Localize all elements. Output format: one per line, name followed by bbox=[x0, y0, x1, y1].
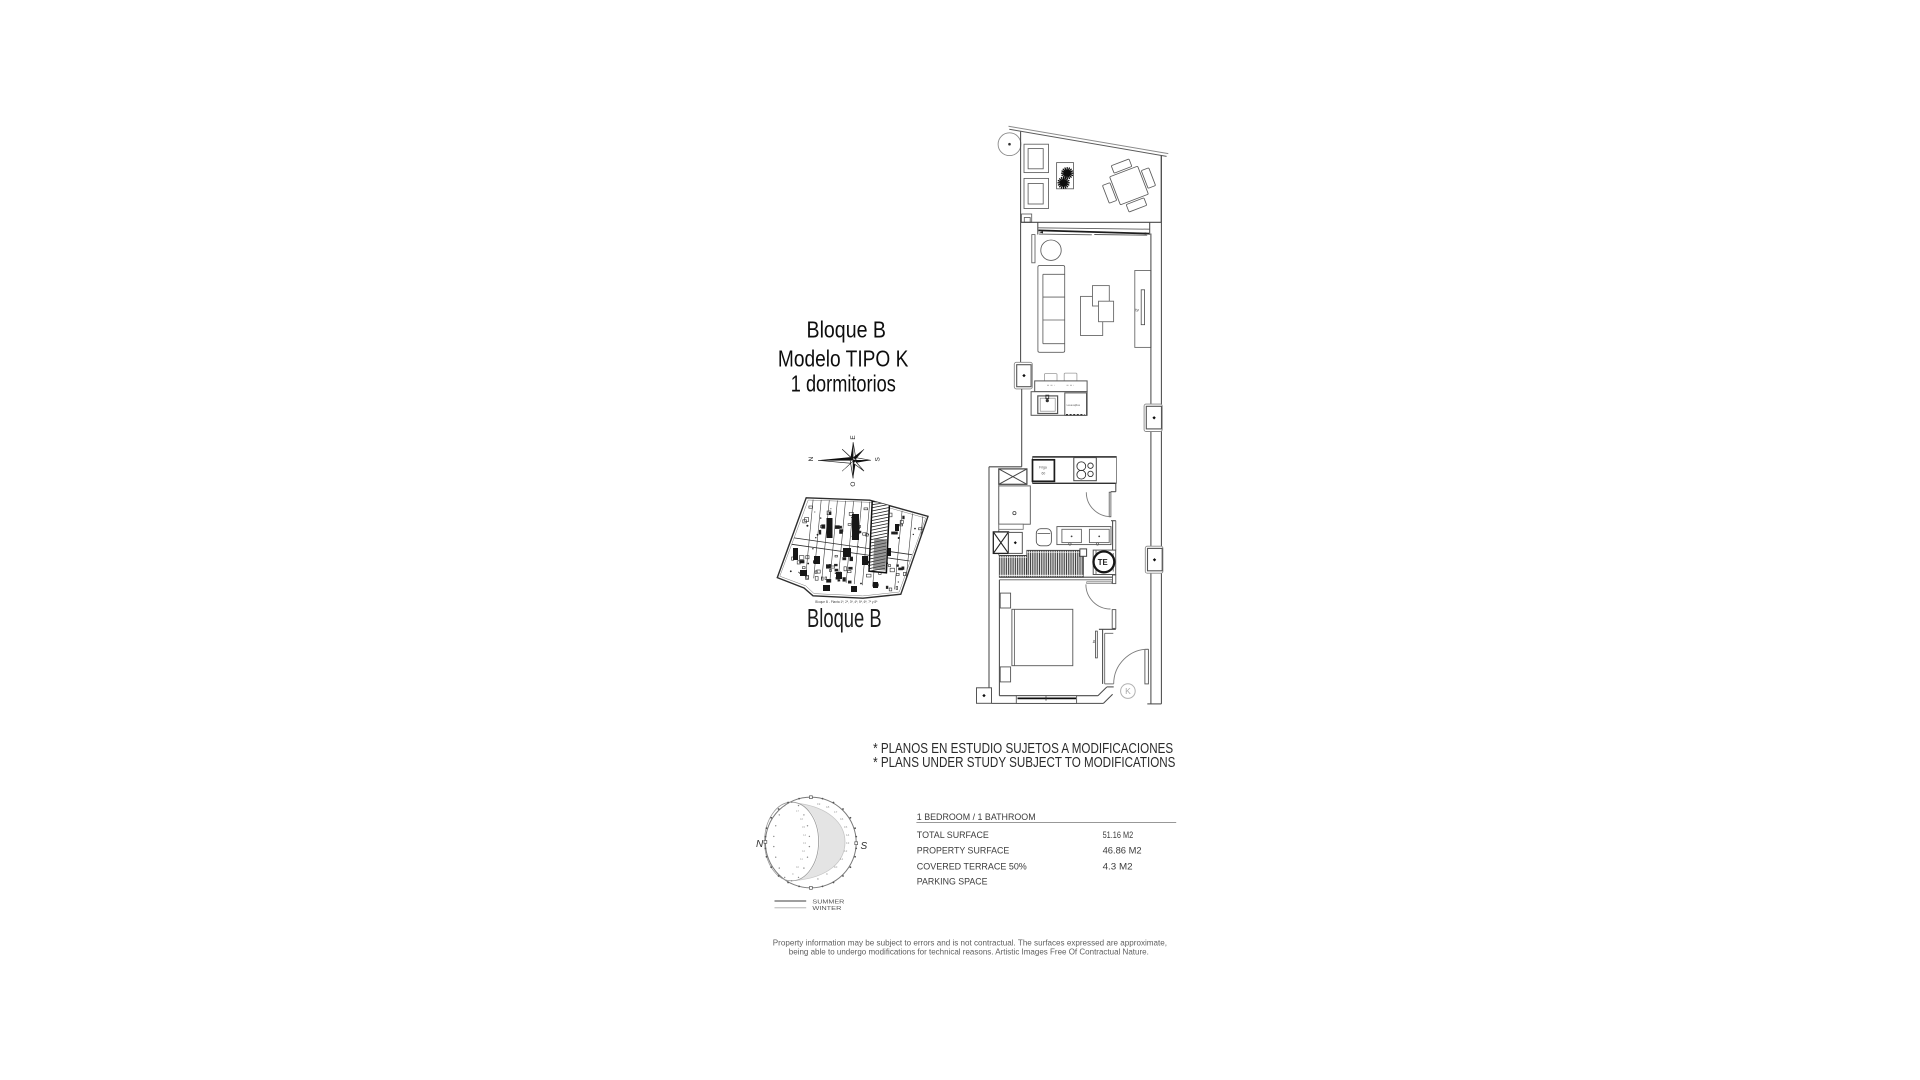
svg-text:15: 15 bbox=[802, 825, 806, 829]
svg-text:10: 10 bbox=[834, 865, 838, 869]
svg-text:PARKING SPACE: PARKING SPACE bbox=[917, 877, 988, 888]
svg-text:Bloque B: Bloque B bbox=[807, 317, 887, 343]
svg-text:being able to undergo modifica: being able to undergo modifications for … bbox=[789, 946, 1149, 956]
svg-text:O: O bbox=[850, 482, 857, 487]
svg-text:Friga: Friga bbox=[1039, 466, 1047, 470]
svg-text:TOTAL SURFACE: TOTAL SURFACE bbox=[917, 830, 989, 841]
svg-text:51.16 M2: 51.16 M2 bbox=[1103, 830, 1134, 841]
svg-text:12: 12 bbox=[844, 849, 848, 853]
svg-text:* PLANS UNDER STUDY SUBJECT TO: * PLANS UNDER STUDY SUBJECT TO MODIFICAT… bbox=[873, 755, 1175, 771]
svg-text:Bloque B - Planta 1ª, 2ª, 3ª,: Bloque B - Planta 1ª, 2ª, 3ª, 4ª, 5ª, 6ª… bbox=[815, 600, 878, 604]
svg-text:15: 15 bbox=[844, 825, 848, 829]
svg-text:4.3 M2: 4.3 M2 bbox=[1103, 861, 1133, 872]
svg-text:13: 13 bbox=[846, 841, 850, 845]
svg-text:16: 16 bbox=[800, 817, 804, 821]
svg-text:11: 11 bbox=[840, 857, 843, 861]
svg-text:COVERED TERRACE 50%: COVERED TERRACE 50% bbox=[917, 861, 1027, 872]
svg-text:Bloque B: Bloque B bbox=[807, 605, 882, 633]
svg-text:12: 12 bbox=[802, 849, 806, 853]
svg-text:N: N bbox=[756, 839, 764, 850]
svg-text:1 dormitorios: 1 dormitorios bbox=[791, 371, 896, 397]
svg-text:S: S bbox=[861, 841, 868, 852]
svg-text:tv: tv bbox=[1091, 640, 1096, 643]
svg-text:17: 17 bbox=[796, 809, 800, 813]
svg-text:TE: TE bbox=[1098, 558, 1108, 567]
svg-text:K: K bbox=[1125, 686, 1131, 696]
svg-text:13: 13 bbox=[803, 841, 807, 845]
svg-text:S: S bbox=[874, 456, 881, 461]
svg-text:14: 14 bbox=[803, 833, 807, 837]
svg-text:1 BEDROOM / 1 BATHROOM: 1 BEDROOM / 1 BATHROOM bbox=[917, 812, 1036, 823]
svg-text:17: 17 bbox=[834, 810, 838, 814]
svg-text:PROPERTY SURFACE: PROPERTY SURFACE bbox=[917, 845, 1010, 856]
svg-text:14: 14 bbox=[846, 833, 850, 837]
svg-text:Modelo TIPO K: Modelo TIPO K bbox=[778, 346, 909, 372]
svg-text:16: 16 bbox=[840, 817, 844, 821]
svg-text:10: 10 bbox=[796, 865, 800, 869]
svg-text:11: 11 bbox=[800, 857, 803, 861]
svg-text:19: 19 bbox=[817, 802, 821, 806]
svg-text:18: 18 bbox=[826, 805, 830, 809]
svg-text:SUMMER: SUMMER bbox=[812, 899, 844, 905]
svg-text:Lavavajillas: Lavavajillas bbox=[1067, 403, 1081, 407]
svg-text:E: E bbox=[850, 435, 857, 440]
svg-text:60: 60 bbox=[1042, 472, 1046, 476]
svg-text:46.86 M2: 46.86 M2 bbox=[1103, 845, 1142, 856]
svg-text:WINTER: WINTER bbox=[812, 906, 841, 912]
svg-text:N: N bbox=[808, 456, 815, 461]
